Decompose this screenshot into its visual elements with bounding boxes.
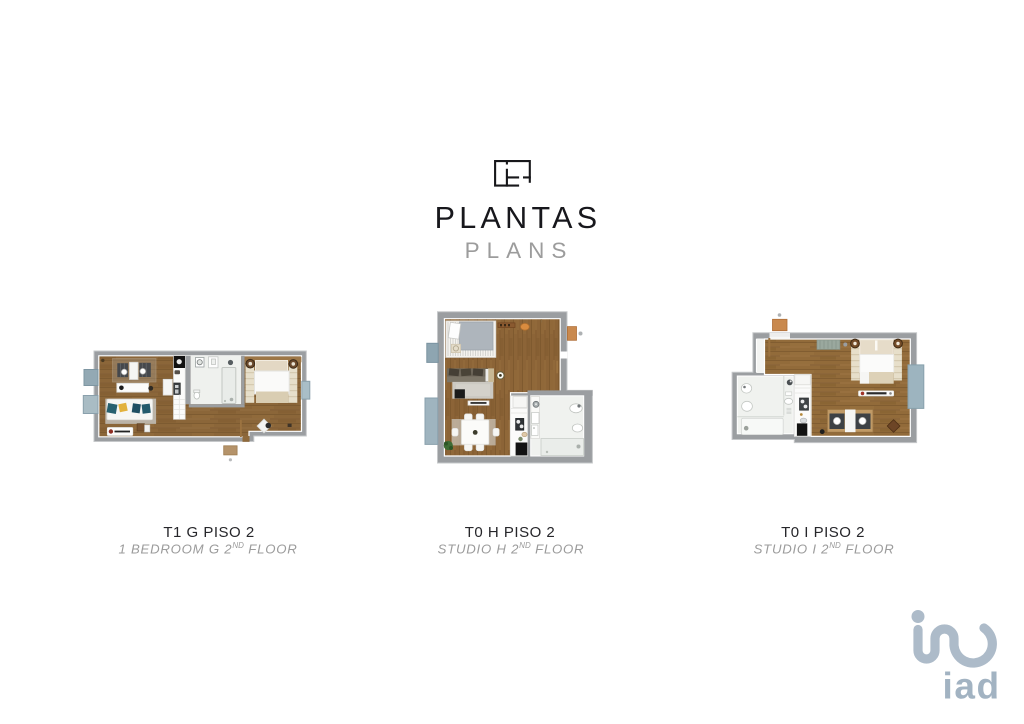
svg-text:iad: iad <box>943 666 1001 707</box>
